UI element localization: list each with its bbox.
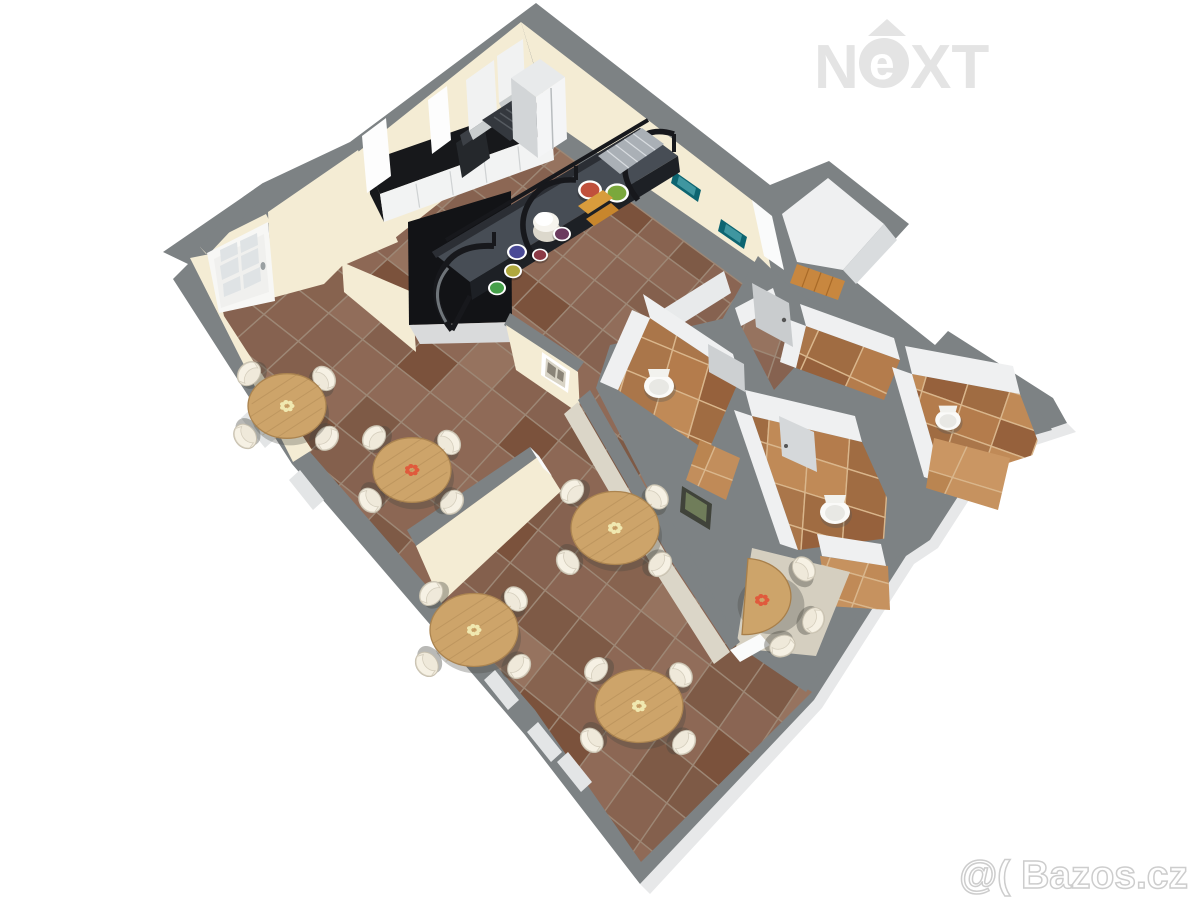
svg-text:@( Bazos.cz: @( Bazos.cz [959,854,1188,897]
svg-text:N: N [814,33,859,102]
svg-text:XT: XT [910,33,989,102]
svg-text:e: e [869,37,895,89]
